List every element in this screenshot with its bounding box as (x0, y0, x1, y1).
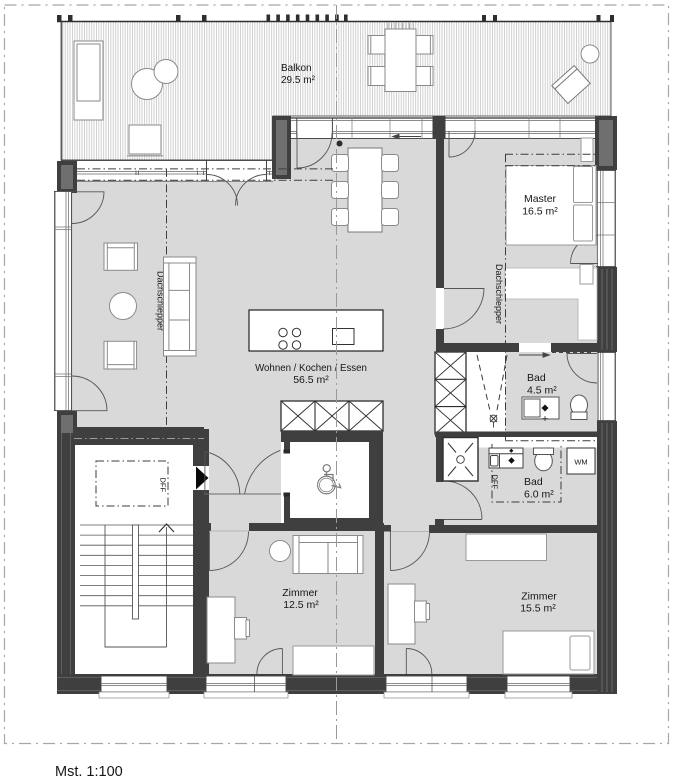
svg-text:6.0 m²: 6.0 m² (524, 489, 554, 501)
svg-text:Wohnen / Kochen / Essen: Wohnen / Kochen / Essen (255, 363, 367, 374)
svg-text:29.5 m²: 29.5 m² (281, 75, 316, 86)
svg-text:Balkon: Balkon (281, 63, 312, 74)
svg-text:16.5 m²: 16.5 m² (522, 206, 558, 218)
svg-text:Bad: Bad (524, 476, 543, 488)
svg-text:56.5 m²: 56.5 m² (293, 374, 329, 386)
svg-text:4.5 m²: 4.5 m² (527, 385, 557, 397)
svg-text:Dachschlepper: Dachschlepper (494, 264, 504, 324)
svg-text:Zimmer: Zimmer (521, 591, 557, 603)
svg-text:Master: Master (524, 193, 557, 205)
svg-text:WM: WM (574, 458, 587, 467)
svg-text:DFF: DFF (159, 478, 168, 493)
svg-text:Bad: Bad (527, 372, 546, 384)
svg-text:15.5 m²: 15.5 m² (520, 603, 556, 615)
svg-text:12.5 m²: 12.5 m² (283, 599, 319, 611)
svg-text:Zimmer: Zimmer (282, 587, 318, 599)
svg-text:Mst. 1:100: Mst. 1:100 (55, 764, 123, 780)
svg-text:DFF: DFF (491, 475, 500, 490)
